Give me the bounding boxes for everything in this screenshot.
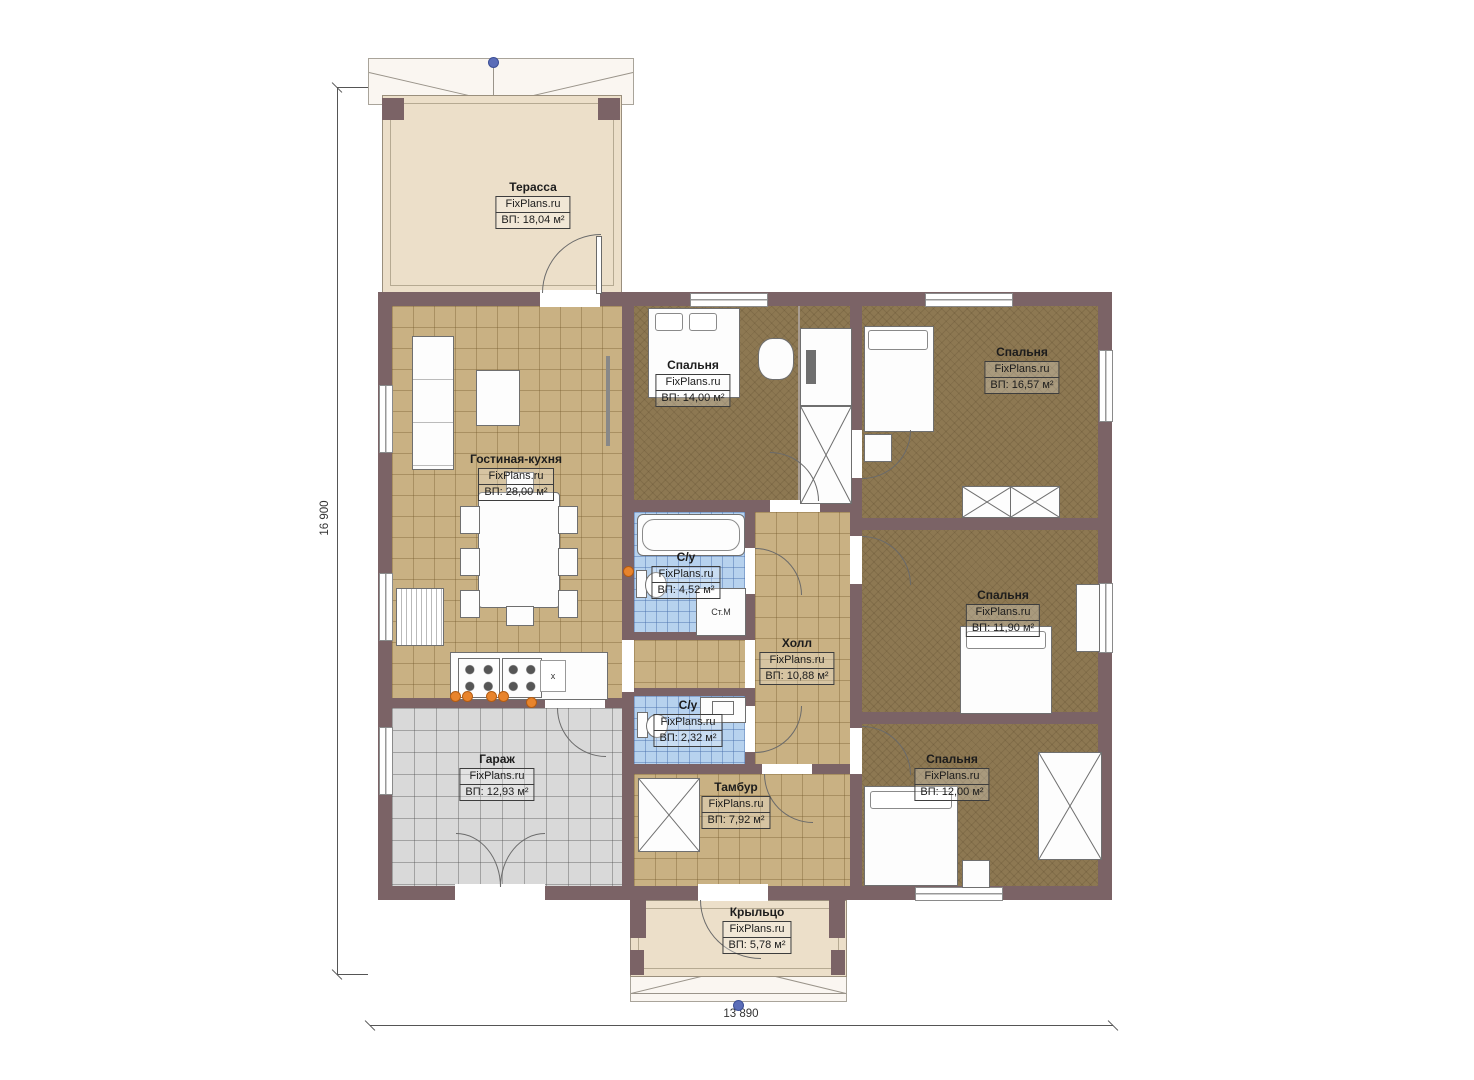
room-area: ВП: 10,88 м² xyxy=(759,668,834,685)
room-name: Холл xyxy=(759,636,834,650)
room-watermark: FixPlans.ru xyxy=(478,468,553,485)
wall-interior xyxy=(850,584,862,728)
wall-interior xyxy=(634,764,762,774)
wardrobe xyxy=(1038,752,1102,860)
room-label-bathroom-1: С/у FixPlans.ru ВП: 4,52 м² xyxy=(651,550,720,599)
window xyxy=(690,293,768,307)
porch-post xyxy=(829,900,845,938)
wall-interior xyxy=(850,774,862,886)
room-watermark: FixPlans.ru xyxy=(984,361,1059,378)
window xyxy=(379,573,393,641)
room-label-bedroom-1: Спальня FixPlans.ru ВП: 14,00 м² xyxy=(655,358,730,407)
terrace-post xyxy=(382,98,404,120)
dining-table xyxy=(478,492,560,608)
bathtub-inner xyxy=(642,519,740,551)
room-label-tambur: Тамбур FixPlans.ru ВП: 7,92 м² xyxy=(701,780,770,829)
room-watermark: FixPlans.ru xyxy=(966,604,1040,621)
room-watermark: FixPlans.ru xyxy=(722,921,791,938)
stove-burners xyxy=(502,658,542,698)
chair xyxy=(506,606,534,626)
room-watermark: FixPlans.ru xyxy=(651,566,720,583)
room-name: Спальня xyxy=(966,588,1040,602)
room-watermark: FixPlans.ru xyxy=(653,714,722,731)
wall-interior xyxy=(622,306,634,640)
chair xyxy=(460,590,480,618)
desk-chair xyxy=(758,338,794,380)
dimension-extension xyxy=(337,87,368,88)
room-area: ВП: 12,93 м² xyxy=(459,784,534,801)
porch-post xyxy=(831,950,845,975)
room-label-bedroom-2: Спальня FixPlans.ru ВП: 16,57 м² xyxy=(984,345,1059,394)
hob-knob-dot xyxy=(486,691,497,702)
room-watermark: FixPlans.ru xyxy=(914,768,989,785)
room-label-bedroom-4: Спальня FixPlans.ru ВП: 12,00 м² xyxy=(914,752,989,801)
hall-corridor-floor xyxy=(634,640,745,688)
room-area: ВП: 5,78 м² xyxy=(722,937,791,954)
kitchen-sink-marker: х xyxy=(540,660,566,692)
wardrobe xyxy=(1010,486,1060,518)
room-area: ВП: 16,57 м² xyxy=(984,377,1059,394)
wall-interior xyxy=(634,500,770,512)
room-name: Тамбур xyxy=(701,780,770,794)
room-name: Терасса xyxy=(495,180,570,194)
bed xyxy=(960,626,1052,714)
wall-interior xyxy=(812,764,850,774)
window xyxy=(379,385,393,453)
room-area: ВП: 7,92 м² xyxy=(701,812,770,829)
wall-interior xyxy=(605,698,634,708)
floor-plan-canvas: 16 900 13 890 xyxy=(0,0,1474,1080)
room-watermark: FixPlans.ru xyxy=(495,196,570,213)
room-name: С/у xyxy=(651,550,720,564)
room-label-porch: Крыльцо FixPlans.ru ВП: 5,78 м² xyxy=(722,905,791,954)
window-sill-unit xyxy=(1076,584,1100,652)
porch-post xyxy=(630,900,646,938)
pillow xyxy=(868,330,928,350)
nightstand xyxy=(962,860,990,888)
dimension-line-horizontal xyxy=(370,1025,1113,1026)
wall-interior xyxy=(745,752,755,764)
room-name: Гараж xyxy=(459,752,534,766)
wall-interior xyxy=(745,594,755,640)
room-area: ВП: 28,00 м² xyxy=(478,484,553,501)
selection-grip[interactable] xyxy=(488,57,499,68)
window xyxy=(915,887,1003,901)
hob-knob-dot xyxy=(450,691,461,702)
tv-unit xyxy=(606,356,610,446)
wall-interior xyxy=(745,512,755,548)
room-area: ВП: 4,52 м² xyxy=(651,582,720,599)
wall-interior xyxy=(634,688,745,696)
room-label-living-kitchen: Гостиная-кухня FixPlans.ru ВП: 28,00 м² xyxy=(470,452,562,501)
room-watermark: FixPlans.ru xyxy=(759,652,834,669)
room-name: Спальня xyxy=(655,358,730,372)
terrace-post xyxy=(598,98,620,120)
wardrobe xyxy=(638,778,700,852)
wall-interior xyxy=(622,692,634,886)
monitor xyxy=(806,350,816,384)
bed xyxy=(864,326,934,432)
room-label-bathroom-2: С/у FixPlans.ru ВП: 2,32 м² xyxy=(653,698,722,747)
dimension-label-vertical: 16 900 xyxy=(319,498,331,538)
pillow xyxy=(655,313,683,331)
room-name: Спальня xyxy=(914,752,989,766)
wardrobe xyxy=(962,486,1012,518)
porch-post xyxy=(630,950,644,975)
hob-knob-dot xyxy=(498,691,509,702)
window xyxy=(1099,350,1113,422)
pillow xyxy=(689,313,717,331)
door-opening-entry xyxy=(698,884,768,901)
room-watermark: FixPlans.ru xyxy=(655,374,730,391)
room-name: Спальня xyxy=(984,345,1059,359)
room-name: Гостиная-кухня xyxy=(470,452,562,466)
room-area: ВП: 11,90 м² xyxy=(966,620,1040,637)
room-area: ВП: 12,00 м² xyxy=(914,784,989,801)
door-leaf-terrace xyxy=(596,236,602,294)
chair xyxy=(558,506,578,534)
room-area: ВП: 2,32 м² xyxy=(653,730,722,747)
wall-interior xyxy=(745,688,755,706)
room-label-terrace: Терасса FixPlans.ru ВП: 18,04 м² xyxy=(495,180,570,229)
room-watermark: FixPlans.ru xyxy=(459,768,534,785)
room-name: С/у xyxy=(653,698,722,712)
room-label-garage: Гараж FixPlans.ru ВП: 12,93 м² xyxy=(459,752,534,801)
chair xyxy=(460,548,480,576)
fixture-dot xyxy=(623,566,634,577)
radiator xyxy=(396,588,444,646)
selection-grip[interactable] xyxy=(733,1000,744,1011)
room-label-bedroom-3: Спальня FixPlans.ru ВП: 11,90 м² xyxy=(966,588,1040,637)
coffee-table xyxy=(476,370,520,426)
chair xyxy=(558,590,578,618)
chair xyxy=(558,548,578,576)
dimension-line-vertical xyxy=(337,88,338,975)
window xyxy=(925,293,1013,307)
roof-eave-line xyxy=(631,993,846,994)
sofa xyxy=(412,336,454,470)
hob-knob-dot xyxy=(526,697,537,708)
wall-interior xyxy=(862,518,1098,530)
hob-knob-dot xyxy=(462,691,473,702)
room-name: Крыльцо xyxy=(722,905,791,919)
room-watermark: FixPlans.ru xyxy=(701,796,770,813)
room-area: ВП: 18,04 м² xyxy=(495,212,570,229)
window xyxy=(379,727,393,795)
room-label-hall: Холл FixPlans.ru ВП: 10,88 м² xyxy=(759,636,834,685)
window xyxy=(1099,583,1113,653)
bed xyxy=(864,786,958,886)
dimension-extension xyxy=(337,974,368,975)
room-area: ВП: 14,00 м² xyxy=(655,390,730,407)
chair xyxy=(460,506,480,534)
